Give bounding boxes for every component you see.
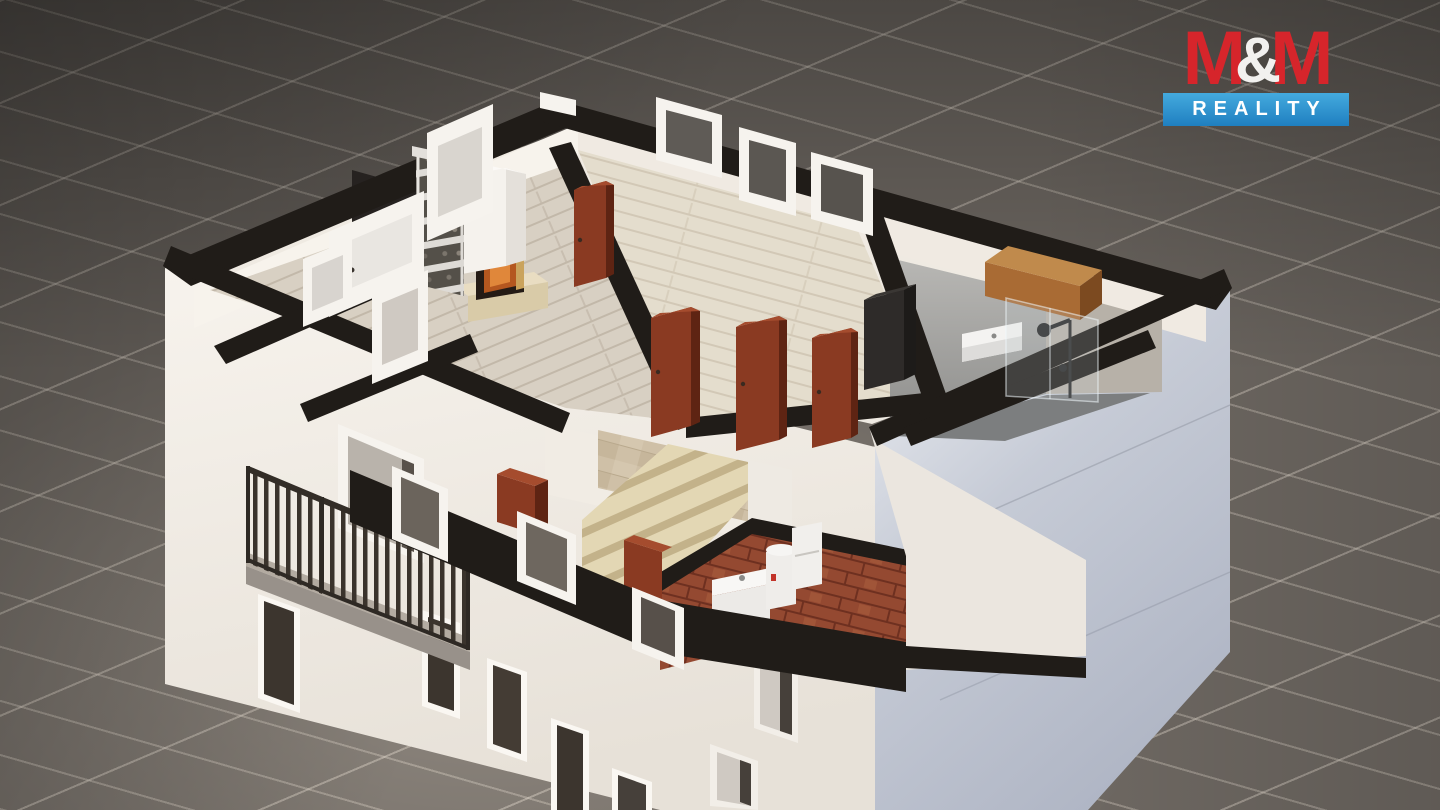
- logo-m2: M: [1270, 28, 1329, 90]
- door: [574, 181, 606, 287]
- mm-reality-logo: M & M REALITY: [1163, 26, 1349, 126]
- render-stage: M & M REALITY: [0, 0, 1440, 810]
- logo-m1: M: [1183, 28, 1242, 90]
- logo-tagline-bar: REALITY: [1163, 93, 1349, 126]
- logo-tagline: REALITY: [1185, 98, 1327, 121]
- logo-ampersand: &: [1235, 32, 1277, 90]
- wardrobe: [864, 284, 916, 390]
- door: [812, 328, 851, 448]
- logo-brand: M & M: [1163, 26, 1349, 90]
